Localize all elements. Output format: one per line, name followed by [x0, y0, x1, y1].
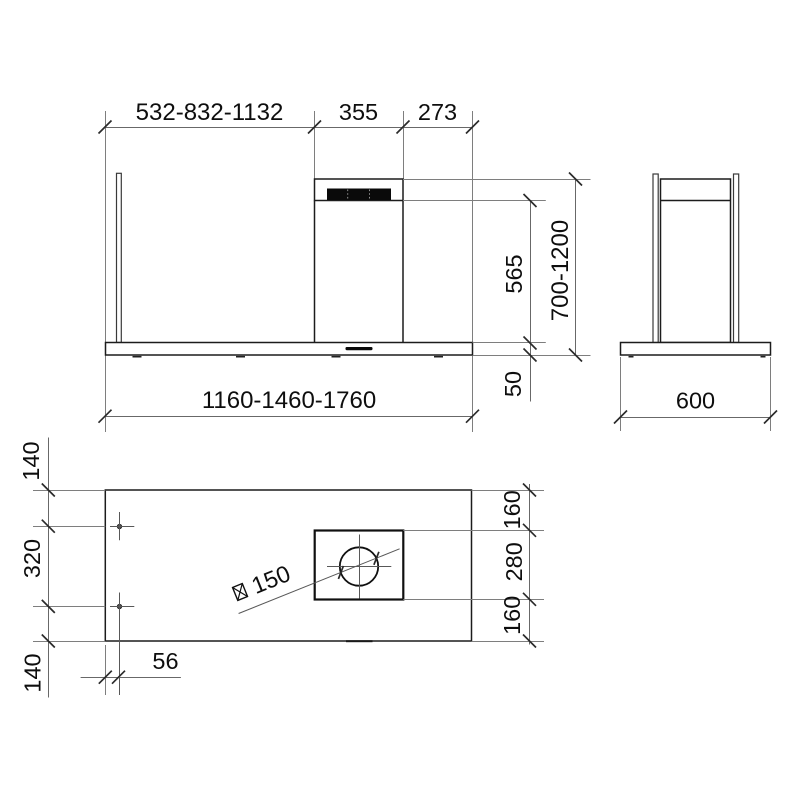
svg-text:532-832-1132: 532-832-1132	[136, 99, 284, 126]
svg-text:280: 280	[501, 542, 527, 581]
svg-text:565: 565	[501, 254, 527, 293]
svg-text:355: 355	[339, 99, 378, 125]
svg-text:160: 160	[499, 596, 525, 635]
svg-text:140: 140	[18, 441, 44, 480]
svg-text:600: 600	[676, 388, 715, 414]
svg-text:320: 320	[19, 539, 45, 578]
svg-text:140: 140	[20, 653, 46, 692]
svg-text:50: 50	[500, 371, 526, 397]
svg-text:1160-1460-1760: 1160-1460-1760	[202, 387, 376, 414]
svg-text:160: 160	[499, 490, 525, 529]
svg-text:273: 273	[418, 99, 457, 125]
svg-text:56: 56	[152, 648, 178, 674]
svg-text:700-1200: 700-1200	[547, 220, 574, 321]
